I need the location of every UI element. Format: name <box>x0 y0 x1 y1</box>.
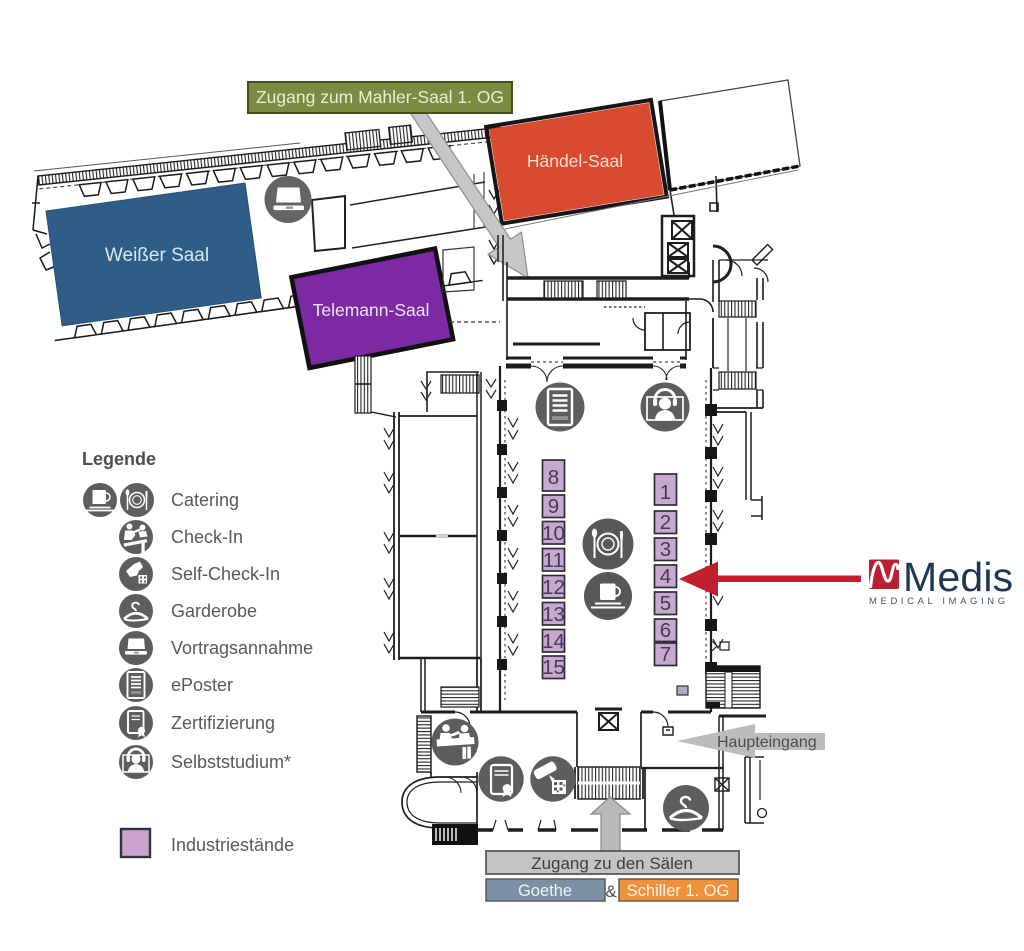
svg-text:1: 1 <box>660 481 671 504</box>
svg-text:Catering: Catering <box>171 490 239 510</box>
svg-text:12: 12 <box>542 576 565 599</box>
svg-text:4: 4 <box>660 565 671 588</box>
svg-text:&: & <box>605 882 617 901</box>
svg-text:Goethe: Goethe <box>518 882 572 900</box>
svg-text:Garderobe: Garderobe <box>171 601 257 621</box>
svg-text:10: 10 <box>542 522 565 545</box>
svg-text:Händel-Saal: Händel-Saal <box>527 151 623 171</box>
svg-text:Zugang zum Mahler-Saal 1. OG: Zugang zum Mahler-Saal 1. OG <box>256 87 504 107</box>
svg-text:Zugang zu den Sälen: Zugang zu den Sälen <box>531 854 693 873</box>
svg-text:Industriestände: Industriestände <box>171 835 294 855</box>
svg-text:Zertifizierung: Zertifizierung <box>171 713 275 733</box>
svg-text:3: 3 <box>660 538 671 561</box>
svg-text:8: 8 <box>548 466 559 489</box>
svg-text:2: 2 <box>660 511 671 534</box>
svg-text:5: 5 <box>660 592 671 615</box>
svg-text:11: 11 <box>543 549 564 572</box>
svg-text:Medis: Medis <box>903 554 1013 600</box>
svg-text:Schiller 1. OG: Schiller 1. OG <box>627 882 730 900</box>
svg-text:Check-In: Check-In <box>171 527 243 547</box>
svg-text:Haupteingang: Haupteingang <box>717 734 817 751</box>
svg-text:Legende: Legende <box>82 449 156 469</box>
svg-text:6: 6 <box>660 619 671 642</box>
svg-text:Weißer Saal: Weißer Saal <box>105 245 209 266</box>
svg-text:MEDICAL IMAGING: MEDICAL IMAGING <box>869 596 1009 607</box>
svg-text:13: 13 <box>542 603 565 626</box>
svg-text:Self-Check-In: Self-Check-In <box>171 564 280 584</box>
svg-text:9: 9 <box>548 495 559 518</box>
svg-text:14: 14 <box>542 630 565 653</box>
svg-text:Vortragsannahme: Vortragsannahme <box>171 638 313 658</box>
svg-text:15: 15 <box>542 656 565 679</box>
svg-text:Selbststudium*: Selbststudium* <box>171 752 291 772</box>
svg-text:ePoster: ePoster <box>171 675 233 695</box>
svg-text:7: 7 <box>660 643 671 666</box>
svg-text:Telemann-Saal: Telemann-Saal <box>313 300 430 320</box>
